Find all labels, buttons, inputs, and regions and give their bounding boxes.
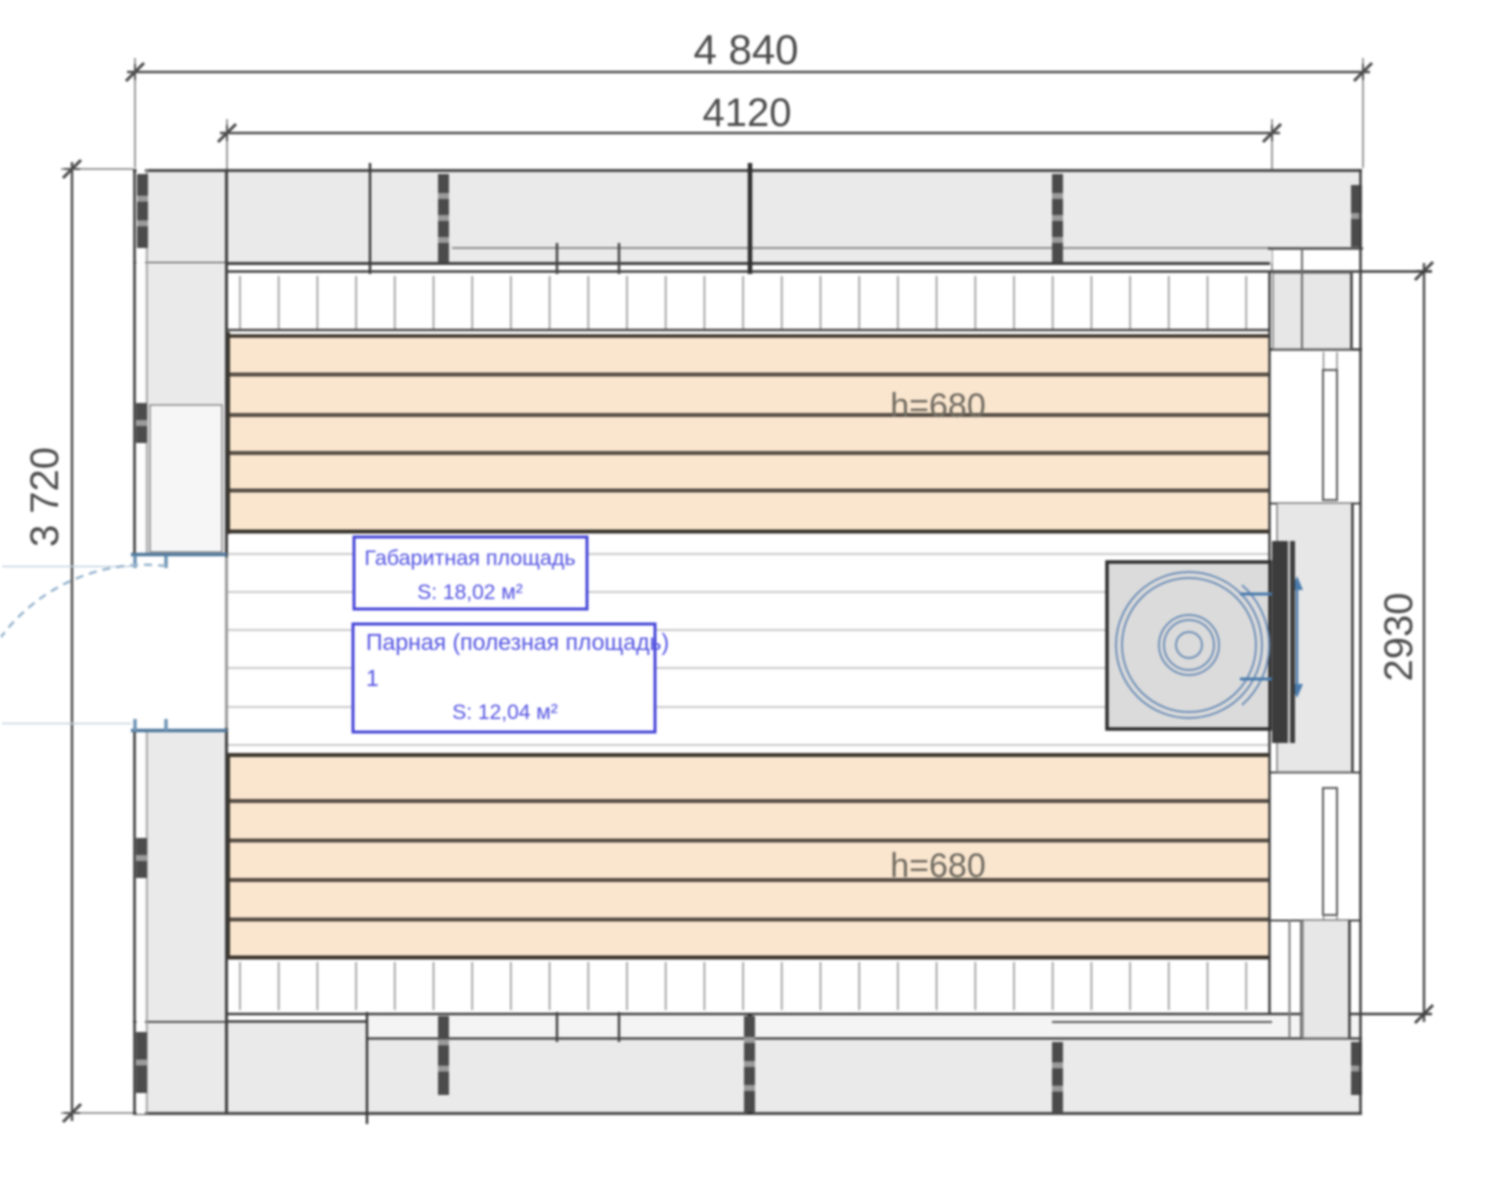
svg-text:h=680: h=680 (890, 847, 986, 885)
svg-text:3 720: 3 720 (23, 447, 67, 547)
svg-text:h=680: h=680 (890, 387, 986, 425)
svg-text:S: 18,02 м²: S: 18,02 м² (417, 581, 523, 604)
svg-text:S: 12,04 м²: S: 12,04 м² (452, 701, 558, 724)
svg-text:4 840: 4 840 (693, 26, 798, 73)
svg-text:1: 1 (366, 665, 379, 691)
svg-text:4120: 4120 (703, 91, 792, 135)
svg-text:Габаритная площадь: Габаритная площадь (364, 546, 575, 570)
svg-text:2930: 2930 (1377, 593, 1421, 682)
svg-text:Парная (полезная площадь): Парная (полезная площадь) (366, 629, 669, 655)
